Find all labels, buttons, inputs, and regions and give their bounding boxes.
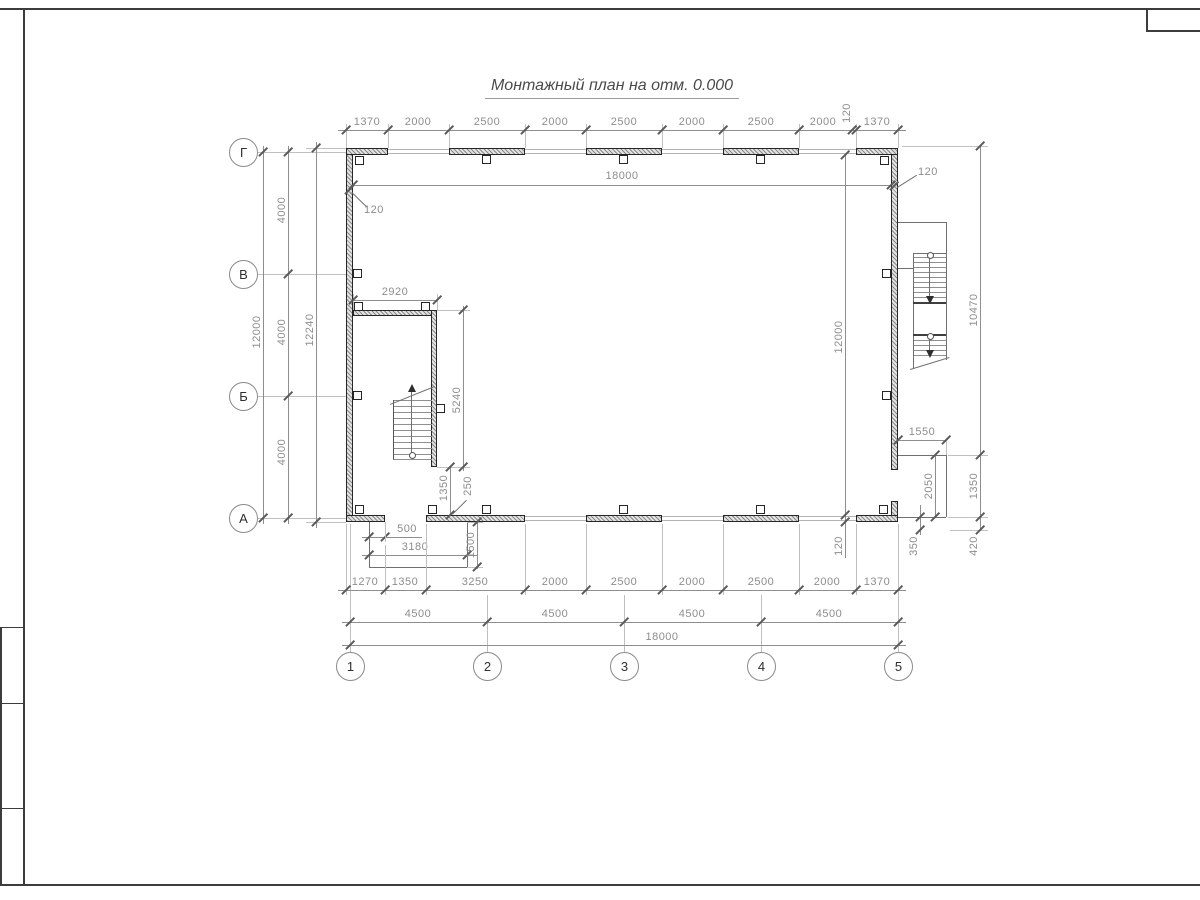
dim-left-bay-0: 4000: [276, 197, 288, 223]
dim-top-chain-8: 120: [841, 103, 853, 123]
dim-top-chain-4: 2500: [611, 116, 637, 128]
frame-stamp-divider: [0, 808, 23, 809]
dim-line: [935, 455, 936, 517]
dim-line: [353, 300, 437, 301]
column-tab: [882, 391, 891, 400]
dim-bottom-chain-0: 1270: [352, 576, 378, 588]
stair-right-landing-bottom: [898, 268, 913, 269]
stair-down-arrow: [926, 296, 934, 304]
stair-direction-start-dot: [409, 452, 416, 459]
dim-bottom-chain-7: 2000: [814, 576, 840, 588]
column-tab: [421, 302, 430, 311]
dim-line: [477, 520, 478, 569]
dim-right-upper: 10470: [968, 293, 980, 326]
dim-top-chain-7: 2000: [810, 116, 836, 128]
axis-label: 4: [758, 659, 765, 674]
line: [662, 153, 723, 154]
wall-panel-bottom: [346, 515, 385, 522]
dim-line: [980, 146, 981, 530]
axis-line: [257, 152, 346, 153]
ext-line: [525, 524, 526, 595]
ext-line: [385, 522, 386, 542]
dim-top-chain-3: 2000: [542, 116, 568, 128]
frame-stamp-left-edge: [0, 627, 2, 885]
stair-direction-start-dot: [927, 252, 934, 259]
frame-bottom-line: [0, 884, 1200, 886]
stair-down-arrow: [926, 350, 934, 358]
column-tab: [482, 505, 491, 514]
leader-line: [452, 500, 467, 515]
axis-line: [257, 518, 346, 519]
porch-right-edge: [946, 455, 947, 517]
column-tab: [880, 156, 889, 165]
axis-line: [257, 274, 346, 275]
dim-bottom-chain-1: 1350: [392, 576, 418, 588]
dim-porch-width: 3180: [402, 541, 428, 553]
dim-left-overall: 12240: [304, 313, 316, 346]
stair-right-direction-line-1: [929, 256, 930, 300]
column-tab: [879, 505, 888, 514]
column-tab: [619, 155, 628, 164]
axis-bubble-col-3: 4: [747, 652, 776, 681]
axis-label: Б: [239, 389, 248, 404]
stair-up-arrow: [408, 384, 416, 392]
column-tab: [756, 505, 765, 514]
wall-right: [891, 148, 898, 470]
frame-left-line: [23, 8, 25, 885]
wall-panel-bottom: [723, 515, 799, 522]
dim-left-bay-1: 4000: [276, 319, 288, 345]
line: [662, 149, 723, 150]
line: [525, 520, 586, 521]
axis-bubble-col-2: 3: [610, 652, 639, 681]
line: [525, 516, 586, 517]
dim-bottom-chain-2: 3250: [462, 576, 488, 588]
dim-bottom-bay-2: 4500: [679, 608, 705, 620]
dim-bottom-chain-5: 2000: [679, 576, 705, 588]
stair-right-outer-edge: [946, 222, 947, 360]
ext-line: [437, 310, 470, 311]
stair-interior-direction-line: [411, 391, 412, 455]
dim-room-width: 2920: [382, 286, 408, 298]
dim-room-gap: 1350: [438, 475, 450, 501]
dim-right-wall-thickness: 120: [918, 166, 938, 178]
ext-line: [948, 517, 988, 518]
column-tab: [428, 505, 437, 514]
line: [388, 149, 449, 150]
dim-line: [450, 467, 451, 515]
dim-top-chain-5: 2000: [679, 116, 705, 128]
line: [388, 153, 449, 154]
ext-line: [948, 455, 988, 456]
wall-panel-top: [723, 148, 799, 155]
axis-bubble-row-1: В: [229, 260, 258, 289]
dim-bottom-chain-8: 1370: [864, 576, 890, 588]
dim-right-stair-offset: 350: [908, 536, 920, 556]
dim-top-chain-1: 2000: [405, 116, 431, 128]
dim-line: [353, 185, 891, 186]
dim-line: [316, 142, 317, 528]
line: [662, 516, 723, 517]
ext-line: [437, 467, 470, 468]
column-tab: [353, 391, 362, 400]
ext-line: [487, 595, 488, 652]
dim-right-stair-width: 1550: [909, 426, 935, 438]
wall-panel-bottom: [586, 515, 662, 522]
porch-right-bottom: [898, 517, 946, 518]
dim-line: [362, 537, 422, 538]
axis-bubble-col-4: 5: [884, 652, 913, 681]
leader-line: [897, 175, 917, 188]
dim-top-chain-6: 2500: [748, 116, 774, 128]
porch-right-top: [898, 455, 946, 456]
line: [662, 520, 723, 521]
dim-bottom-bay-3: 4500: [816, 608, 842, 620]
axis-line: [257, 396, 346, 397]
dim-left-bay-2: 4000: [276, 439, 288, 465]
dim-right-stair-depth: 2050: [923, 473, 935, 499]
ext-line: [902, 146, 988, 147]
axis-bubble-row-2: Б: [229, 382, 258, 411]
ext-line: [723, 524, 724, 595]
porch-left-bottom: [369, 567, 467, 568]
dim-top-chain-0: 1370: [354, 116, 380, 128]
dim-porch-offset: 500: [397, 523, 417, 535]
dim-top-chain-2: 2500: [474, 116, 500, 128]
dim-porch-depth: 1500: [465, 532, 477, 558]
dim-top-inner-width: 18000: [605, 170, 638, 182]
axis-bubble-row-3: А: [229, 504, 258, 533]
frame-top-line: [0, 8, 1200, 10]
axis-label: В: [239, 267, 248, 282]
dim-room-depth: 5240: [451, 387, 463, 413]
drawing-title: Монтажный план на отм. 0.000: [485, 77, 739, 99]
ext-line: [856, 524, 857, 595]
dim-bottom-chain-4: 2500: [611, 576, 637, 588]
column-tab: [355, 505, 364, 514]
line: [525, 149, 586, 150]
dim-bottom-chain-3: 2000: [542, 576, 568, 588]
ext-line: [350, 524, 351, 652]
wall-panel-top: [856, 148, 898, 155]
wall-panel-bottom: [856, 515, 898, 522]
stair-right-landing-top: [898, 222, 946, 223]
axis-label: 1: [347, 659, 354, 674]
dim-line: [338, 130, 906, 131]
column-tab: [756, 155, 765, 164]
line: [525, 153, 586, 154]
wall-panel-top: [586, 148, 662, 155]
dim-line: [362, 555, 478, 556]
drawing-sheet: Монтажный план на отм. 0.000: [0, 0, 1200, 900]
porch-left-edge: [369, 522, 370, 567]
dim-left-total: 12000: [251, 315, 263, 348]
dim-room-clearance: 250: [462, 476, 474, 496]
ext-line: [586, 524, 587, 595]
axis-label: 5: [895, 659, 902, 674]
axis-bubble-row-0: Г: [229, 138, 258, 167]
column-tab: [354, 302, 363, 311]
column-tab: [436, 404, 445, 413]
column-tab: [482, 155, 491, 164]
ext-line: [761, 595, 762, 652]
ext-line: [624, 595, 625, 652]
dim-top-chain-9: 1370: [864, 116, 890, 128]
frame-stamp-divider: [0, 627, 23, 628]
column-tab: [355, 156, 364, 165]
dim-right-mid: 1350: [968, 473, 980, 499]
wall-panel-top: [346, 148, 388, 155]
dim-right-lower: 420: [968, 536, 980, 556]
frame-stamp-divider: [0, 703, 23, 704]
dim-bottom-bay-0: 4500: [405, 608, 431, 620]
axis-bubble-col-0: 1: [336, 652, 365, 681]
ext-line: [662, 524, 663, 595]
frame-corner-notch-horizontal: [1146, 30, 1200, 32]
dim-bottom-bay-1: 4500: [542, 608, 568, 620]
dim-line: [288, 146, 289, 524]
dim-line: [845, 155, 846, 558]
axis-bubble-col-1: 2: [473, 652, 502, 681]
dim-right-inner-height: 12000: [833, 320, 845, 353]
axis-label: А: [239, 511, 248, 526]
dim-bottom-chain-6: 2500: [748, 576, 774, 588]
wall-panel-top: [449, 148, 525, 155]
stair-interior-treads: [393, 400, 432, 460]
dim-line: [342, 645, 906, 646]
dim-line: [463, 306, 464, 471]
frame-corner-notch-vertical: [1146, 8, 1148, 30]
wall-left: [346, 148, 353, 522]
dim-bottom-right-wall-thickness: 120: [833, 536, 845, 556]
ext-line: [950, 530, 988, 531]
dim-bottom-total: 18000: [645, 631, 678, 643]
ext-line: [426, 524, 427, 595]
dim-left-wall-thickness: 120: [364, 204, 384, 216]
axis-label: Г: [240, 145, 247, 160]
dim-line: [263, 146, 264, 524]
column-tab: [882, 269, 891, 278]
ext-line: [799, 524, 800, 595]
axis-label: 2: [484, 659, 491, 674]
stair-direction-start-dot: [927, 333, 934, 340]
ext-line: [346, 524, 347, 595]
dim-line: [898, 440, 946, 441]
column-tab: [353, 269, 362, 278]
axis-label: 3: [621, 659, 628, 674]
column-tab: [619, 505, 628, 514]
